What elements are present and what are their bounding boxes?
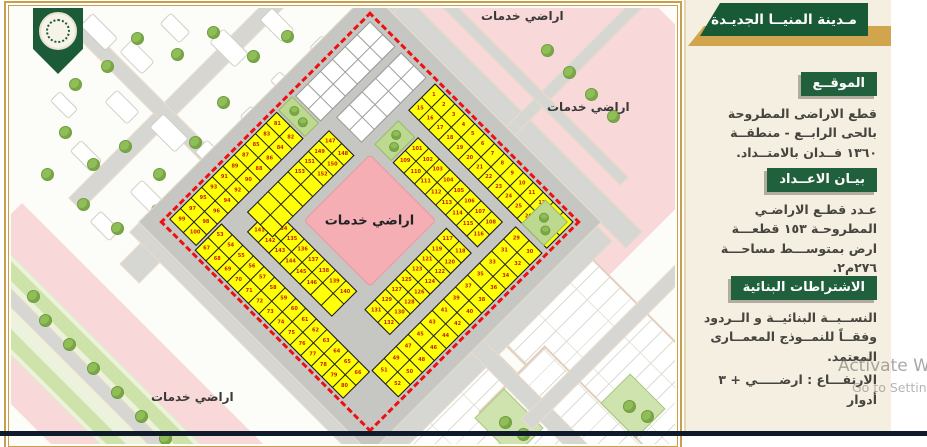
- tree-icon: [281, 30, 294, 43]
- tree-icon: [541, 44, 554, 57]
- tree-icon: [135, 410, 148, 423]
- tree-icon: [207, 26, 220, 39]
- tree-icon: [87, 362, 100, 375]
- tree-icon: [623, 400, 636, 413]
- counts-text: عـدد قطـع الاراضـي المطروحـة ١٥٣ قطعـــة…: [700, 200, 877, 278]
- tree-icon: [69, 78, 82, 91]
- tree-icon: [153, 168, 166, 181]
- tree-icon: [39, 314, 52, 327]
- service-land-label-bottom-left: اراضي خدمات: [151, 390, 234, 404]
- tree-icon: [77, 198, 90, 211]
- tree-icon: [101, 60, 114, 73]
- tree-icon: [287, 104, 301, 118]
- tree-icon: [41, 168, 54, 181]
- tree-icon: [389, 128, 403, 142]
- central-services-label: اراضي خدمات: [325, 213, 415, 228]
- tree-icon: [131, 32, 144, 45]
- tree-icon: [217, 96, 230, 109]
- activate-windows-watermark-sub: Go to Settings to activate Windows.: [852, 380, 927, 395]
- building-rules-badge: الاشتراطات البنائية: [731, 276, 877, 300]
- tree-icon: [247, 50, 260, 63]
- masterplan-map: اراضي خدمات 1234567891011121314151617181…: [11, 8, 675, 444]
- section-location: الموقــع قطع الاراضى المطروحة بالحى الرا…: [686, 72, 891, 162]
- tree-icon: [63, 338, 76, 351]
- service-land-label-top: اراضي خدمات: [481, 9, 564, 23]
- tree-icon: [537, 211, 551, 225]
- tree-icon: [189, 136, 202, 149]
- tree-icon: [111, 222, 124, 235]
- tree-icon: [387, 140, 401, 154]
- tree-icon: [538, 223, 552, 237]
- window-bottom-edge: [0, 431, 927, 436]
- building-shape: [50, 91, 78, 119]
- location-text: قطع الاراضى المطروحة بالحى الرابــع - من…: [700, 104, 877, 162]
- activate-windows-watermark: Activate Windows: [838, 356, 927, 376]
- tree-icon: [641, 410, 654, 423]
- screenshot-root: { "sidebar": { "city_title": "مـدينة الم…: [0, 0, 927, 436]
- tree-icon: [119, 140, 132, 153]
- tree-icon: [171, 48, 184, 61]
- tree-icon: [296, 115, 310, 129]
- tree-icon: [499, 416, 512, 429]
- service-land-label-right: اراضي خدمات: [547, 100, 630, 114]
- tree-icon: [59, 126, 72, 139]
- section-counts: بيـان الاعــداد عـدد قطـع الاراضـي المطر…: [686, 168, 891, 278]
- tree-icon: [27, 290, 40, 303]
- authority-logo-icon: [33, 8, 83, 74]
- authority-emblem-icon: [39, 12, 77, 50]
- masterplan-map-frame: اراضي خدمات 1234567891011121314151617181…: [8, 5, 678, 447]
- location-badge: الموقــع: [801, 72, 877, 96]
- counts-badge: بيـان الاعــداد: [767, 168, 877, 192]
- tree-icon: [111, 386, 124, 399]
- tree-icon: [563, 66, 576, 79]
- tree-icon: [87, 158, 100, 171]
- title-ribbon: مـدينة المنيــا الجديـدة: [700, 3, 868, 36]
- building-shape: [159, 12, 190, 43]
- city-title: مـدينة المنيــا الجديـدة: [711, 12, 857, 28]
